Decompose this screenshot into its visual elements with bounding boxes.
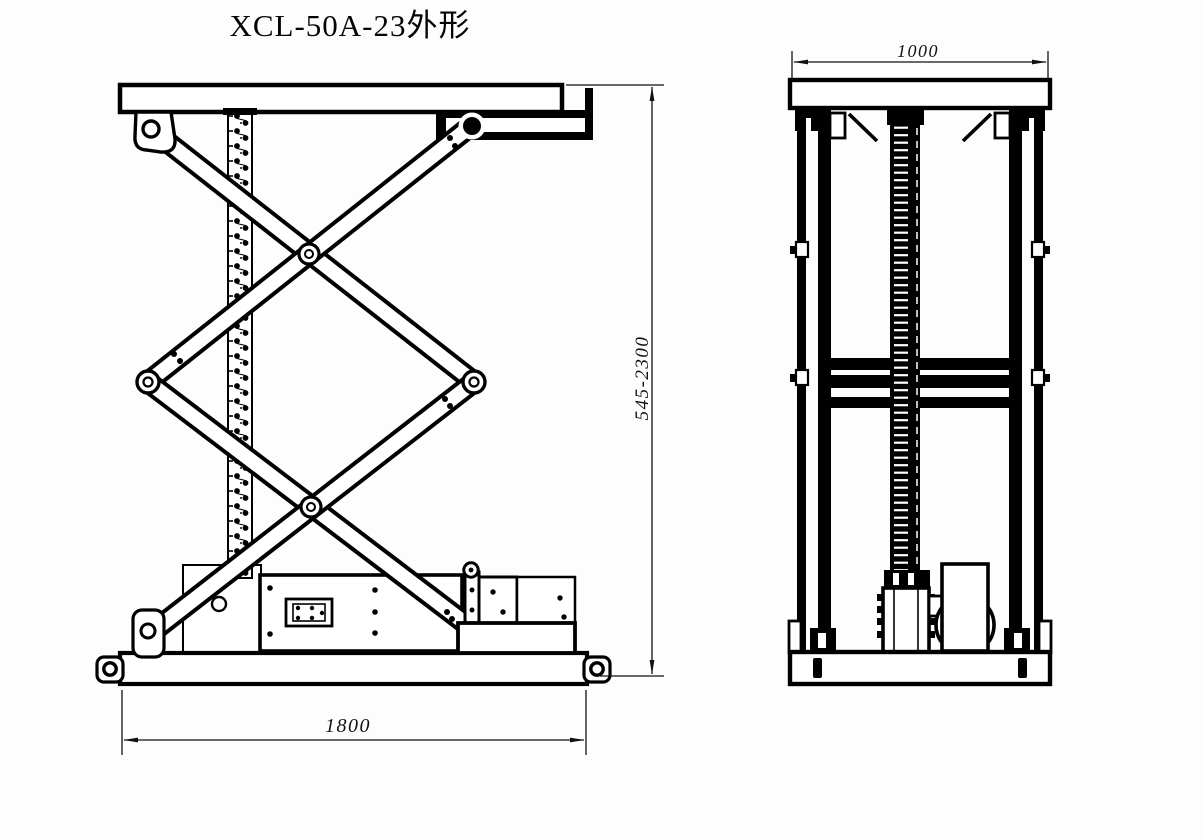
side-top-roller <box>459 113 486 140</box>
arrowhead-right <box>1032 60 1047 65</box>
brace-diagonal-left <box>849 114 877 141</box>
arrowhead-left <box>124 738 139 743</box>
front-motor <box>929 564 994 654</box>
side-dim-width: 1800 <box>122 690 586 755</box>
front-gear-housing <box>877 570 935 652</box>
technical-drawing: XCL-50A-23外形 <box>0 0 1203 839</box>
arrowhead-left <box>794 60 809 65</box>
height-dimension-label: 545-2300 <box>632 336 653 421</box>
side-link-bar <box>465 572 479 625</box>
front-base-plate <box>790 652 1050 684</box>
arrowhead-right <box>570 738 585 743</box>
drawing-sheet: XCL-50A-23外形 <box>0 0 1203 839</box>
drawing-title: XCL-50A-23外形 <box>229 8 470 43</box>
side-view: 545-2300 1800 <box>97 85 664 755</box>
front-chain-column <box>887 110 924 578</box>
side-pedestal <box>458 623 575 653</box>
front-width-dimension-label: 1000 <box>897 41 939 61</box>
front-view: 1000 <box>789 41 1051 684</box>
side-arm-bolts <box>159 135 458 622</box>
pivot-pin-bottom-left <box>141 624 155 638</box>
front-dim-width: 1000 <box>792 41 1048 78</box>
side-top-platform <box>120 85 562 112</box>
base-slot-right <box>1018 658 1027 678</box>
pivot-pin-top-left <box>143 121 159 137</box>
arrowhead-up <box>650 87 655 102</box>
arrowhead-down <box>650 660 655 675</box>
side-top-left-bracket <box>135 112 175 152</box>
side-plate-inner <box>479 577 517 625</box>
side-bottom-right-assembly <box>458 563 575 653</box>
side-bottom-left-bracket <box>133 610 164 657</box>
side-middle-pivots <box>137 244 485 517</box>
base-slot-left <box>813 658 822 678</box>
side-base-bar <box>97 653 610 684</box>
brace-diagonal-right <box>963 114 991 141</box>
side-scissor-arms <box>147 125 474 636</box>
front-top-platform <box>790 80 1050 108</box>
side-dim-height: 545-2300 <box>566 85 664 676</box>
width-dimension-label: 1800 <box>325 715 371 737</box>
motor-body-rect <box>942 564 988 651</box>
